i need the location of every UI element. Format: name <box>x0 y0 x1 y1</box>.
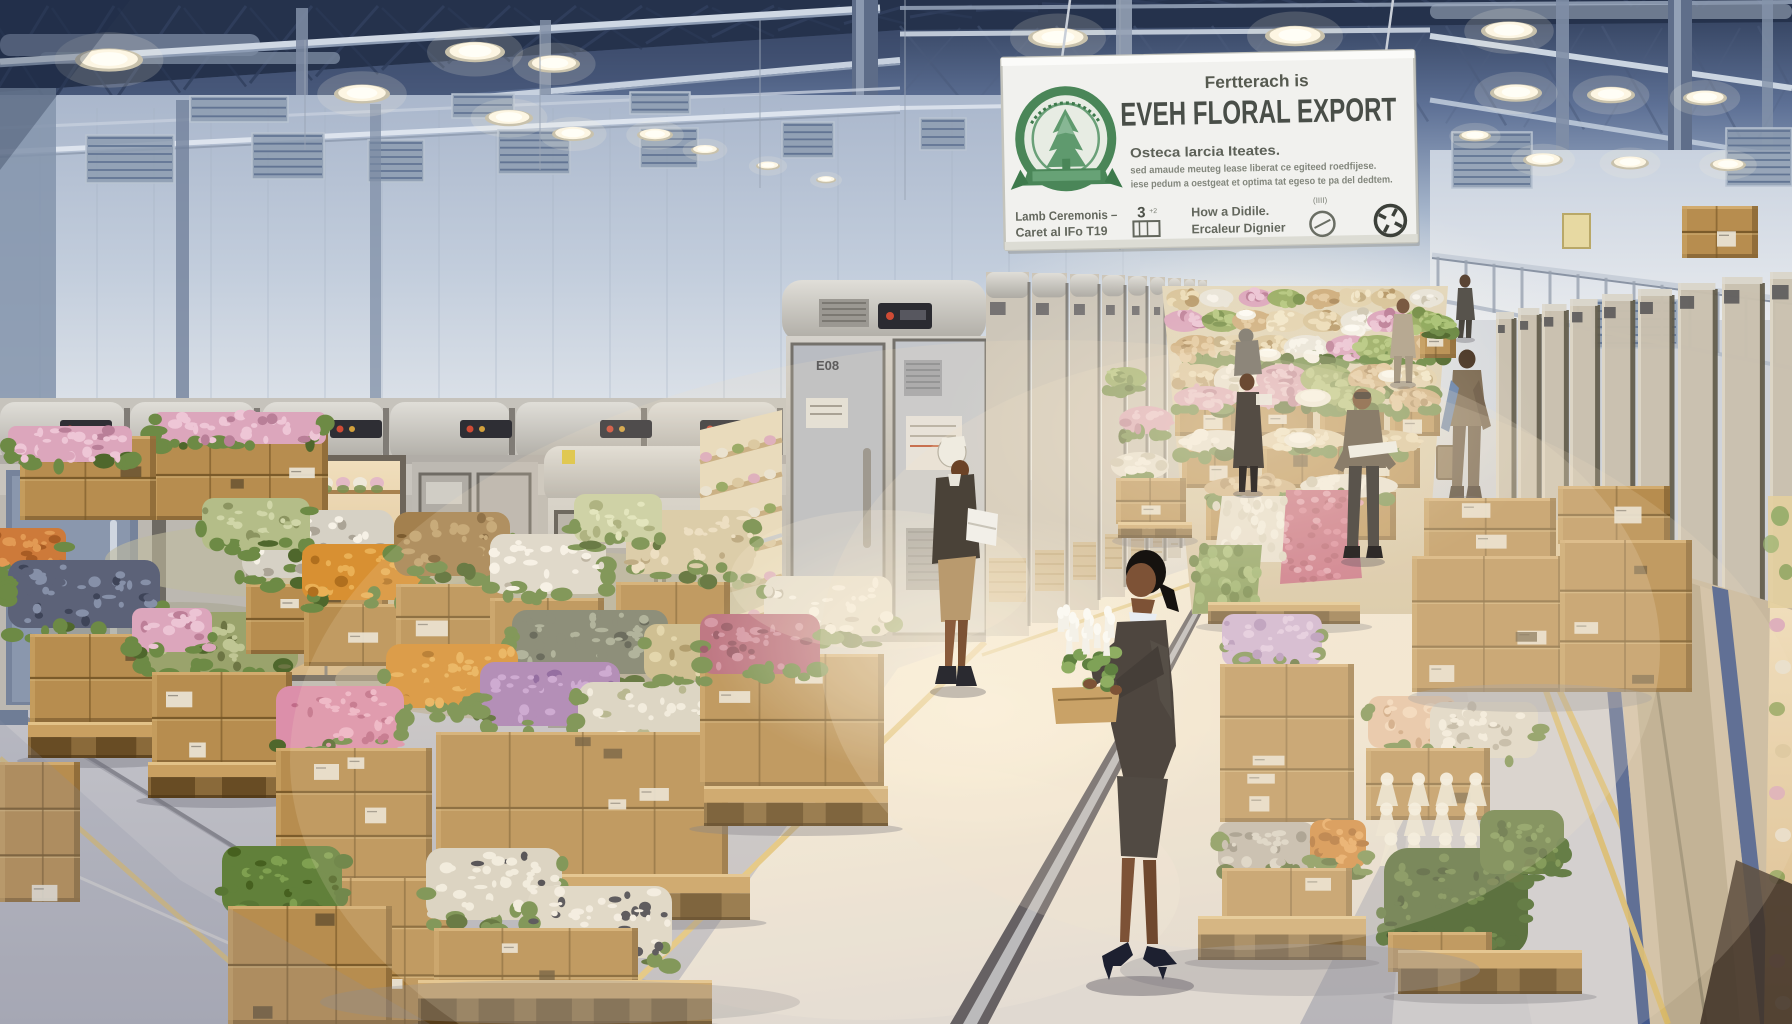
svg-text:(IIII): (IIII) <box>1313 196 1328 205</box>
svg-text:+2: +2 <box>1149 208 1157 215</box>
svg-text:Fertterach is: Fertterach is <box>1205 71 1309 92</box>
svg-text:How a Didile.: How a Didile. <box>1191 204 1269 219</box>
svg-text:Lamb Ceremonis –: Lamb Ceremonis – <box>1015 208 1117 224</box>
svg-text:3: 3 <box>1137 204 1146 221</box>
svg-text:Caret al IFo T19: Caret al IFo T19 <box>1015 224 1107 240</box>
svg-text:EVEH FLORAL EXPORT: EVEH FLORAL EXPORT <box>1120 90 1397 132</box>
svg-text:Osteca larcia Iteates.: Osteca larcia Iteates. <box>1130 143 1280 161</box>
svg-text:Ercaleur Dignier: Ercaleur Dignier <box>1191 221 1285 237</box>
